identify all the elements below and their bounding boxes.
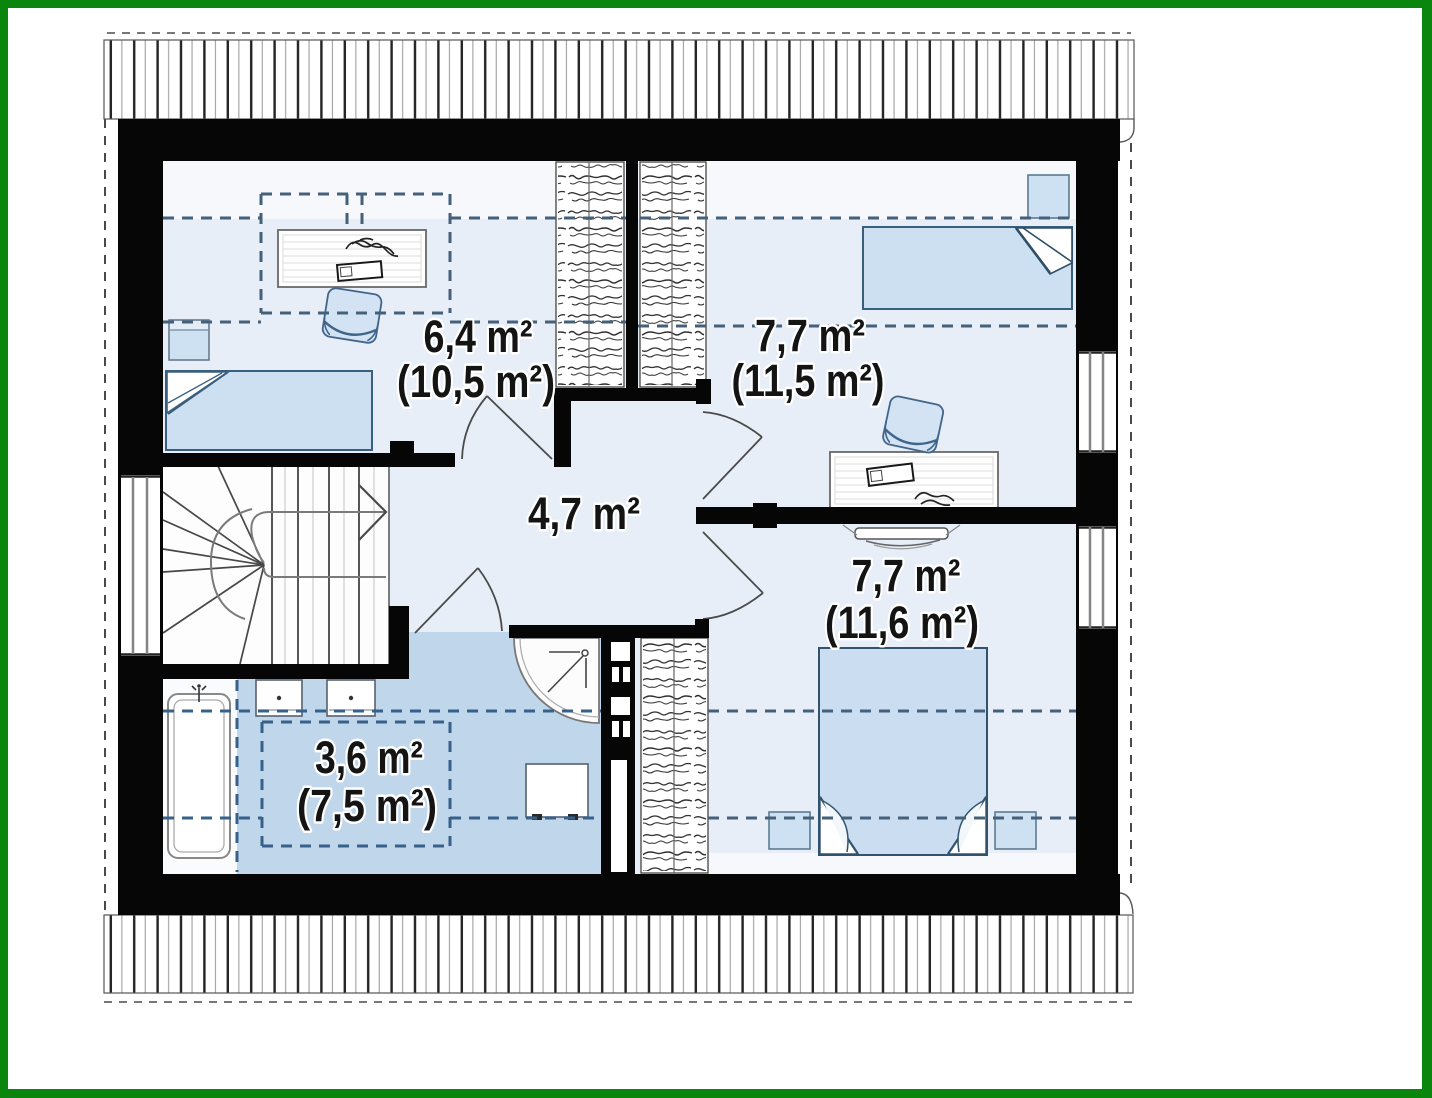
svg-text:7,7 m²: 7,7 m² xyxy=(755,310,865,361)
svg-text:6,4 m²: 6,4 m² xyxy=(424,311,533,362)
svg-text:(10,5 m²): (10,5 m²) xyxy=(397,356,555,407)
svg-text:(11,5 m²): (11,5 m²) xyxy=(732,355,885,406)
svg-text:(11,6 m²): (11,6 m²) xyxy=(825,597,979,648)
svg-text:(7,5 m²): (7,5 m²) xyxy=(297,780,437,831)
svg-text:7,7 m²: 7,7 m² xyxy=(852,550,961,601)
svg-text:3,6 m²: 3,6 m² xyxy=(315,732,423,783)
svg-text:4,7 m²: 4,7 m² xyxy=(528,488,640,539)
